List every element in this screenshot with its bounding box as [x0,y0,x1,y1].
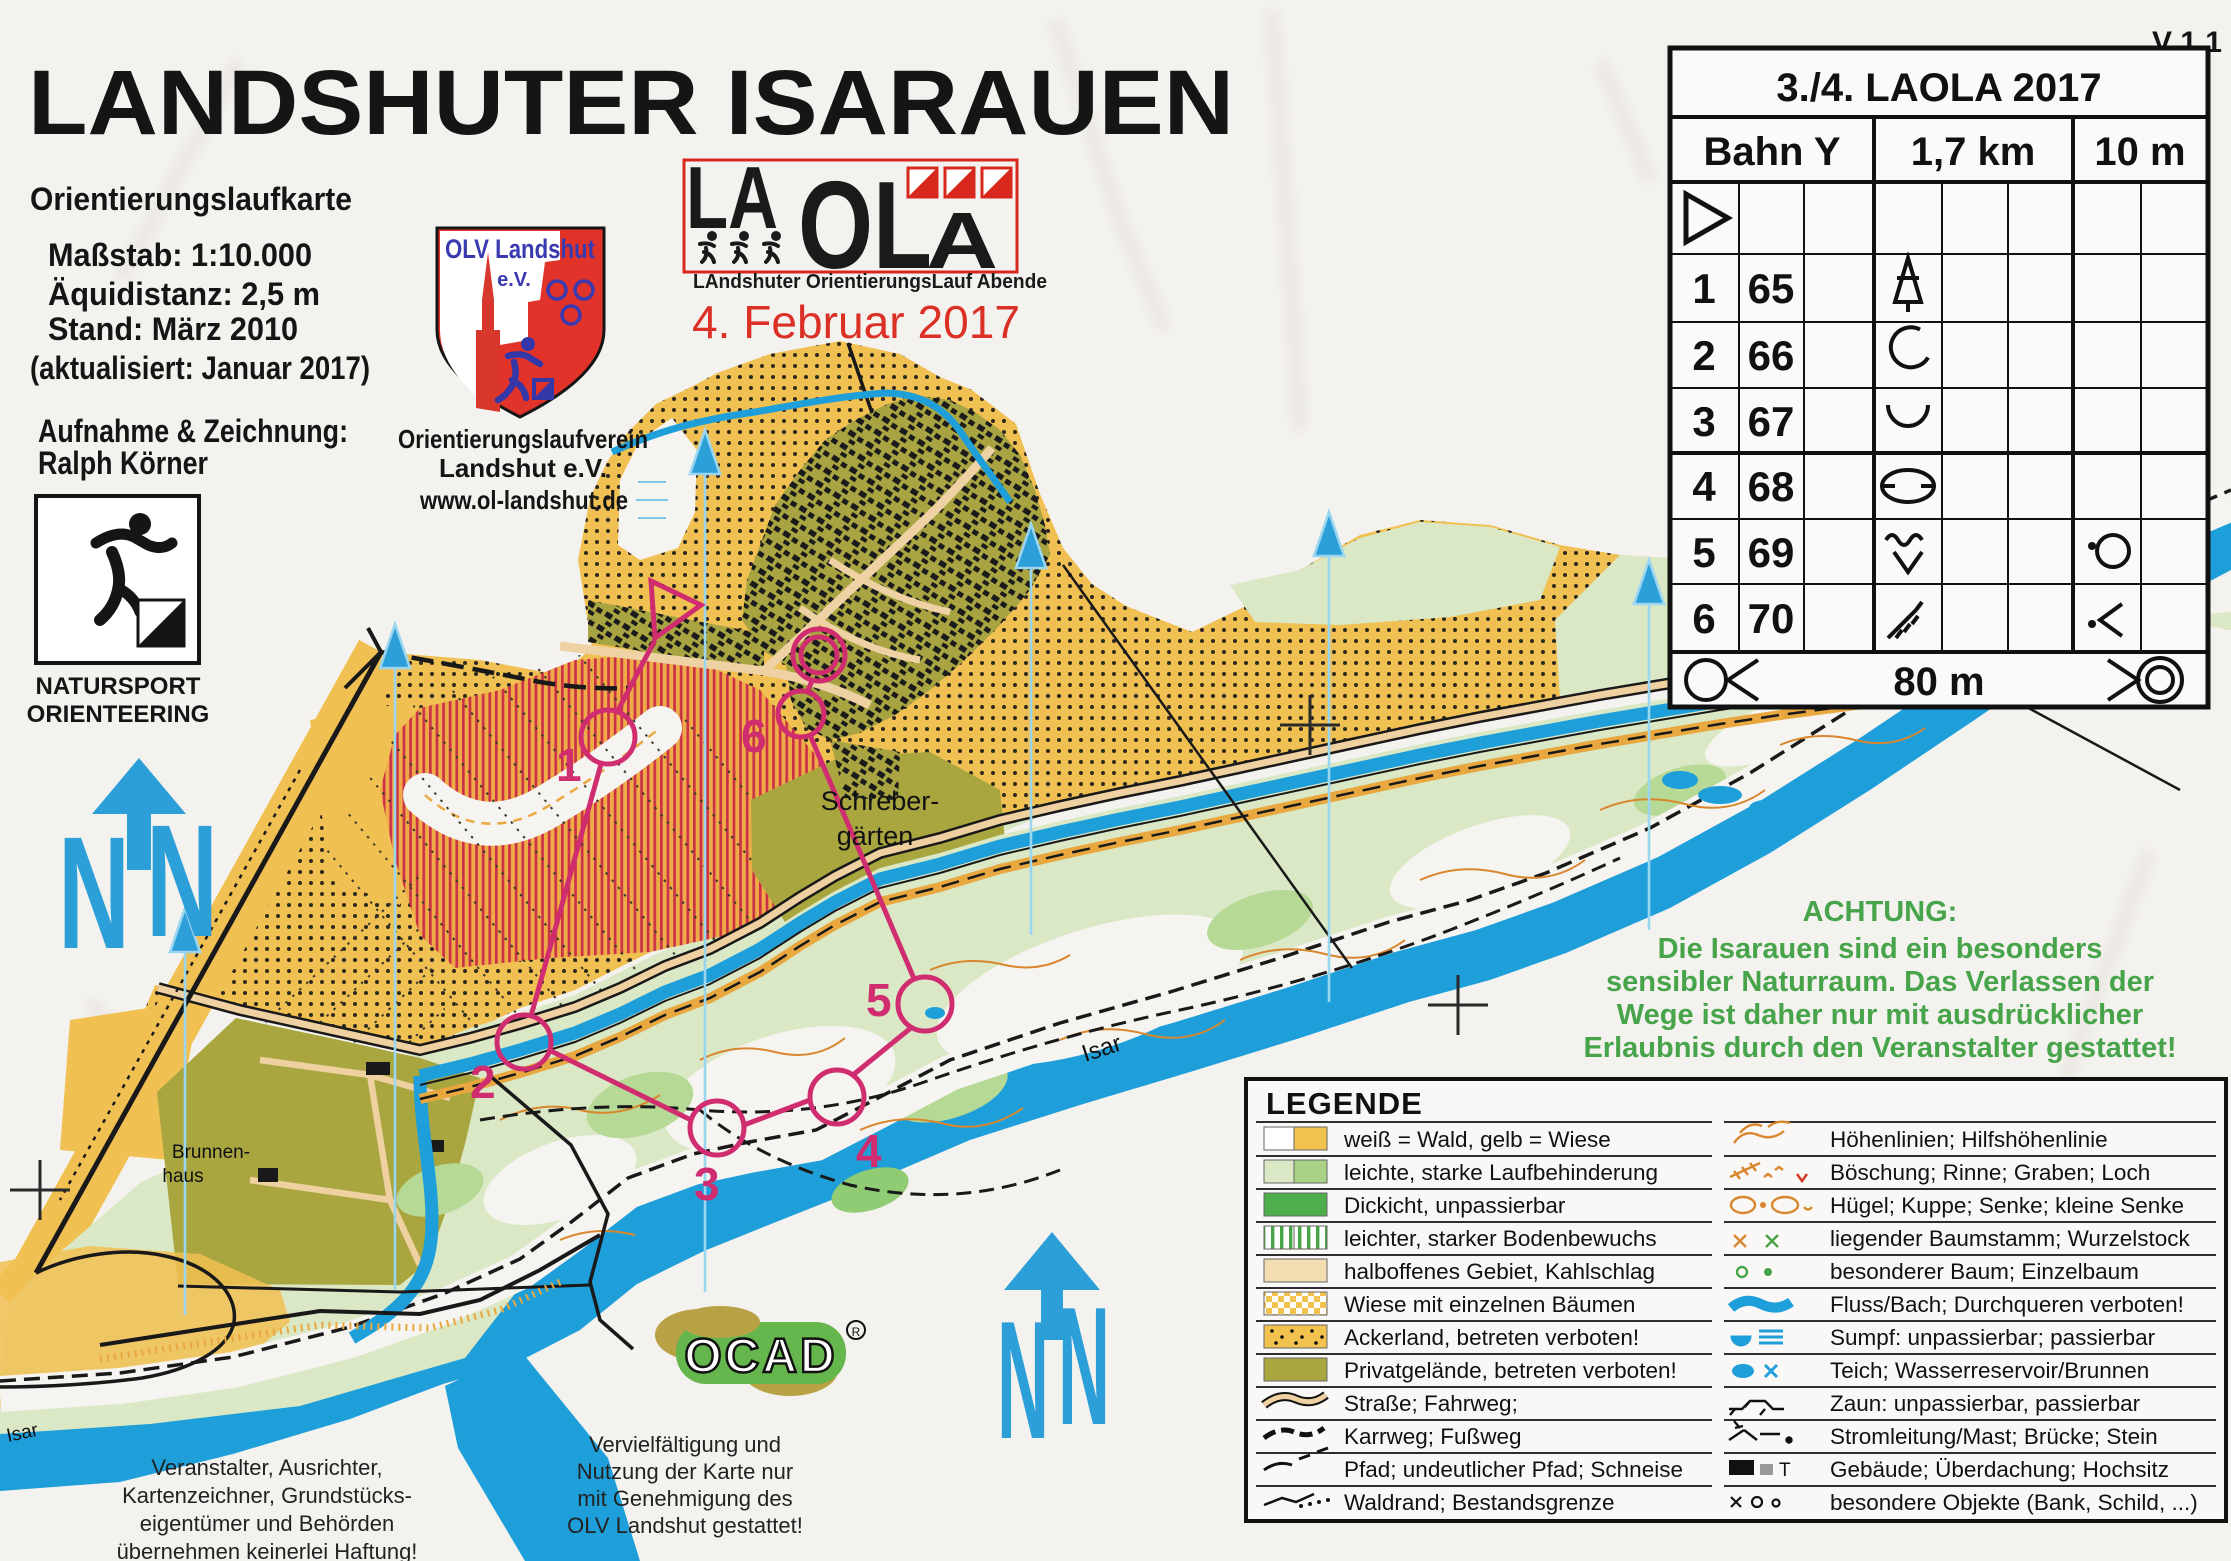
svg-text:liegender Baumstamm; Wurzelsto: liegender Baumstamm; Wurzelstock [1830,1226,2190,1251]
svg-text:Fluss/Bach; Durchqueren verbot: Fluss/Bach; Durchqueren verboten! [1830,1292,2184,1317]
svg-text:LAndshuter OrientierungsLauf A: LAndshuter OrientierungsLauf Abende [693,271,1047,293]
svg-text:OCAD: OCAD [684,1330,837,1383]
svg-text:6: 6 [741,710,767,762]
svg-text:Waldrand; Bestandsgrenze: Waldrand; Bestandsgrenze [1344,1490,1615,1515]
svg-text:OLV Landshut gestattet!: OLV Landshut gestattet! [567,1513,803,1538]
svg-text:N: N [58,803,130,982]
svg-text:Teich; Wasserreservoir/Brunnen: Teich; Wasserreservoir/Brunnen [1830,1358,2149,1383]
svg-text:Bahn Y: Bahn Y [1703,130,1840,174]
svg-text:besonderer Baum; Einzelbaum: besonderer Baum; Einzelbaum [1830,1259,2139,1284]
svg-text:leichte, starke Laufbehinderun: leichte, starke Laufbehinderung [1344,1160,1658,1185]
svg-text:ORIENTEERING: ORIENTEERING [27,701,210,728]
svg-text:5: 5 [1692,529,1715,576]
svg-text:N: N [146,791,218,970]
svg-text:gärten: gärten [837,821,914,851]
svg-text:Wege ist daher nur mit ausdrüc: Wege ist daher nur mit ausdrücklicher [1617,999,2143,1031]
svg-text:Straße; Fahrweg;: Straße; Fahrweg; [1344,1391,1518,1416]
svg-text:4: 4 [856,1125,882,1177]
svg-text:65: 65 [1748,265,1795,312]
svg-text:eigentümer und Behörden: eigentümer und Behörden [140,1511,394,1536]
svg-text:weiß = Wald, gelb = Wiese: weiß = Wald, gelb = Wiese [1343,1127,1611,1152]
svg-text:(aktualisiert: Januar 2017): (aktualisiert: Januar 2017) [30,350,370,386]
svg-text:4: 4 [1692,463,1716,510]
svg-text:NATURSPORT: NATURSPORT [36,673,201,700]
svg-text:sensibler Naturraum. Das Verla: sensibler Naturraum. Das Verlassen der [1606,966,2154,998]
svg-text:Nutzung der Karte nur: Nutzung der Karte nur [577,1459,793,1484]
svg-text:Pfad; undeutlicher Pfad; Schne: Pfad; undeutlicher Pfad; Schneise [1344,1457,1683,1482]
svg-text:1: 1 [1692,265,1715,312]
svg-text:80 m: 80 m [1893,660,1984,704]
svg-text:Sumpf: unpassierbar; passierba: Sumpf: unpassierbar; passierbar [1830,1325,2156,1350]
svg-text:5: 5 [866,974,892,1026]
svg-text:Hügel; Kuppe; Senke; kleine Se: Hügel; Kuppe; Senke; kleine Senke [1830,1193,2184,1218]
svg-text:1,7 km: 1,7 km [1911,130,2036,174]
svg-text:3./4. LAOLA 2017: 3./4. LAOLA 2017 [1776,66,2101,110]
svg-text:LA: LA [686,148,778,247]
svg-text:Orientierungslaufverein: Orientierungslaufverein [398,424,648,454]
svg-text:R: R [852,1325,861,1339]
svg-text:3: 3 [1692,398,1715,445]
svg-text:N: N [997,1286,1049,1474]
svg-text:Äquidistanz: 2,5 m: Äquidistanz: 2,5 m [48,276,320,312]
svg-text:haus: haus [162,1166,203,1187]
svg-text:70: 70 [1748,595,1795,642]
svg-text:10 m: 10 m [2094,130,2185,174]
svg-text:Wiese mit einzelnen Bäumen: Wiese mit einzelnen Bäumen [1344,1292,1635,1317]
svg-text:68: 68 [1748,463,1795,510]
svg-text:69: 69 [1748,529,1795,576]
svg-text:Brunnen-: Brunnen- [172,1142,250,1163]
svg-text:Schreber-: Schreber- [821,786,940,816]
svg-text:e.V.: e.V. [497,269,531,291]
svg-text:übernehmen keinerlei Haftung!: übernehmen keinerlei Haftung! [117,1539,418,1561]
svg-text:Veranstalter, Ausrichter,: Veranstalter, Ausrichter, [151,1455,382,1480]
svg-text:Gebäude; Überdachung; Hochsitz: Gebäude; Überdachung; Hochsitz [1830,1457,2169,1482]
svg-text:4. Februar 2017: 4. Februar 2017 [692,296,1020,348]
svg-text:Maßstab: 1:10.000: Maßstab: 1:10.000 [48,237,312,273]
svg-text:T: T [1779,1460,1791,1481]
svg-text:Ralph Körner: Ralph Körner [38,445,208,481]
svg-text:OLV Landshut: OLV Landshut [445,234,595,264]
svg-text:Stromleitung/Mast; Brücke; Ste: Stromleitung/Mast; Brücke; Stein [1830,1424,2158,1449]
svg-text:Privatgelände, betreten verbot: Privatgelände, betreten verboten! [1344,1358,1677,1383]
svg-text:Zaun: unpassierbar, passierbar: Zaun: unpassierbar, passierbar [1830,1391,2141,1416]
svg-text:Dickicht, unpassierbar: Dickicht, unpassierbar [1344,1193,1566,1218]
svg-text:2: 2 [1692,332,1715,379]
svg-text:2: 2 [470,1056,496,1108]
svg-text:ACHTUNG:: ACHTUNG: [1803,896,1958,928]
svg-text:LANDSHUTER ISARAUEN: LANDSHUTER ISARAUEN [28,52,1234,154]
svg-text:Orientierungslaufkarte: Orientierungslaufkarte [30,181,352,217]
svg-text:Karrweg; Fußweg: Karrweg; Fußweg [1344,1424,1522,1449]
svg-text:6: 6 [1692,595,1715,642]
svg-text:halboffenes Gebiet, Kahlschlag: halboffenes Gebiet, Kahlschlag [1344,1259,1655,1284]
svg-text:Die Isarauen sind ein besonder: Die Isarauen sind ein besonders [1658,933,2103,965]
svg-text:Aufnahme & Zeichnung:: Aufnahme & Zeichnung: [38,413,348,449]
svg-text:Höhenlinien; Hilfshöhenlinie: Höhenlinien; Hilfshöhenlinie [1830,1127,2108,1152]
svg-text:Landshut e.V.: Landshut e.V. [439,453,607,483]
svg-text:www.ol-landshut.de: www.ol-landshut.de [419,485,628,515]
svg-text:Stand: März 2010: Stand: März 2010 [48,311,298,347]
svg-text:Ackerland, betreten verboten!: Ackerland, betreten verboten! [1344,1325,1639,1350]
svg-text:Kartenzeichner, Grundstücks-: Kartenzeichner, Grundstücks- [122,1483,412,1508]
svg-text:LEGENDE: LEGENDE [1266,1086,1423,1121]
svg-text:66: 66 [1748,332,1795,379]
svg-text:Erlaubnis durch den Veranstalt: Erlaubnis durch den Veranstalter gestatt… [1583,1032,2176,1064]
svg-text:leichter, starker Bodenbewuchs: leichter, starker Bodenbewuchs [1344,1226,1657,1251]
svg-text:Vervielfältigung und: Vervielfältigung und [589,1432,781,1457]
svg-text:Böschung; Rinne; Graben; Loch: Böschung; Rinne; Graben; Loch [1830,1160,2150,1185]
svg-text:67: 67 [1748,398,1795,445]
svg-text:besondere Objekte (Bank, Schil: besondere Objekte (Bank, Schild, ...) [1830,1490,2198,1515]
svg-text:1: 1 [556,739,582,791]
svg-text:N: N [1058,1272,1110,1460]
svg-text:3: 3 [694,1158,720,1210]
svg-text:mit Genehmigung des: mit Genehmigung des [577,1486,792,1511]
